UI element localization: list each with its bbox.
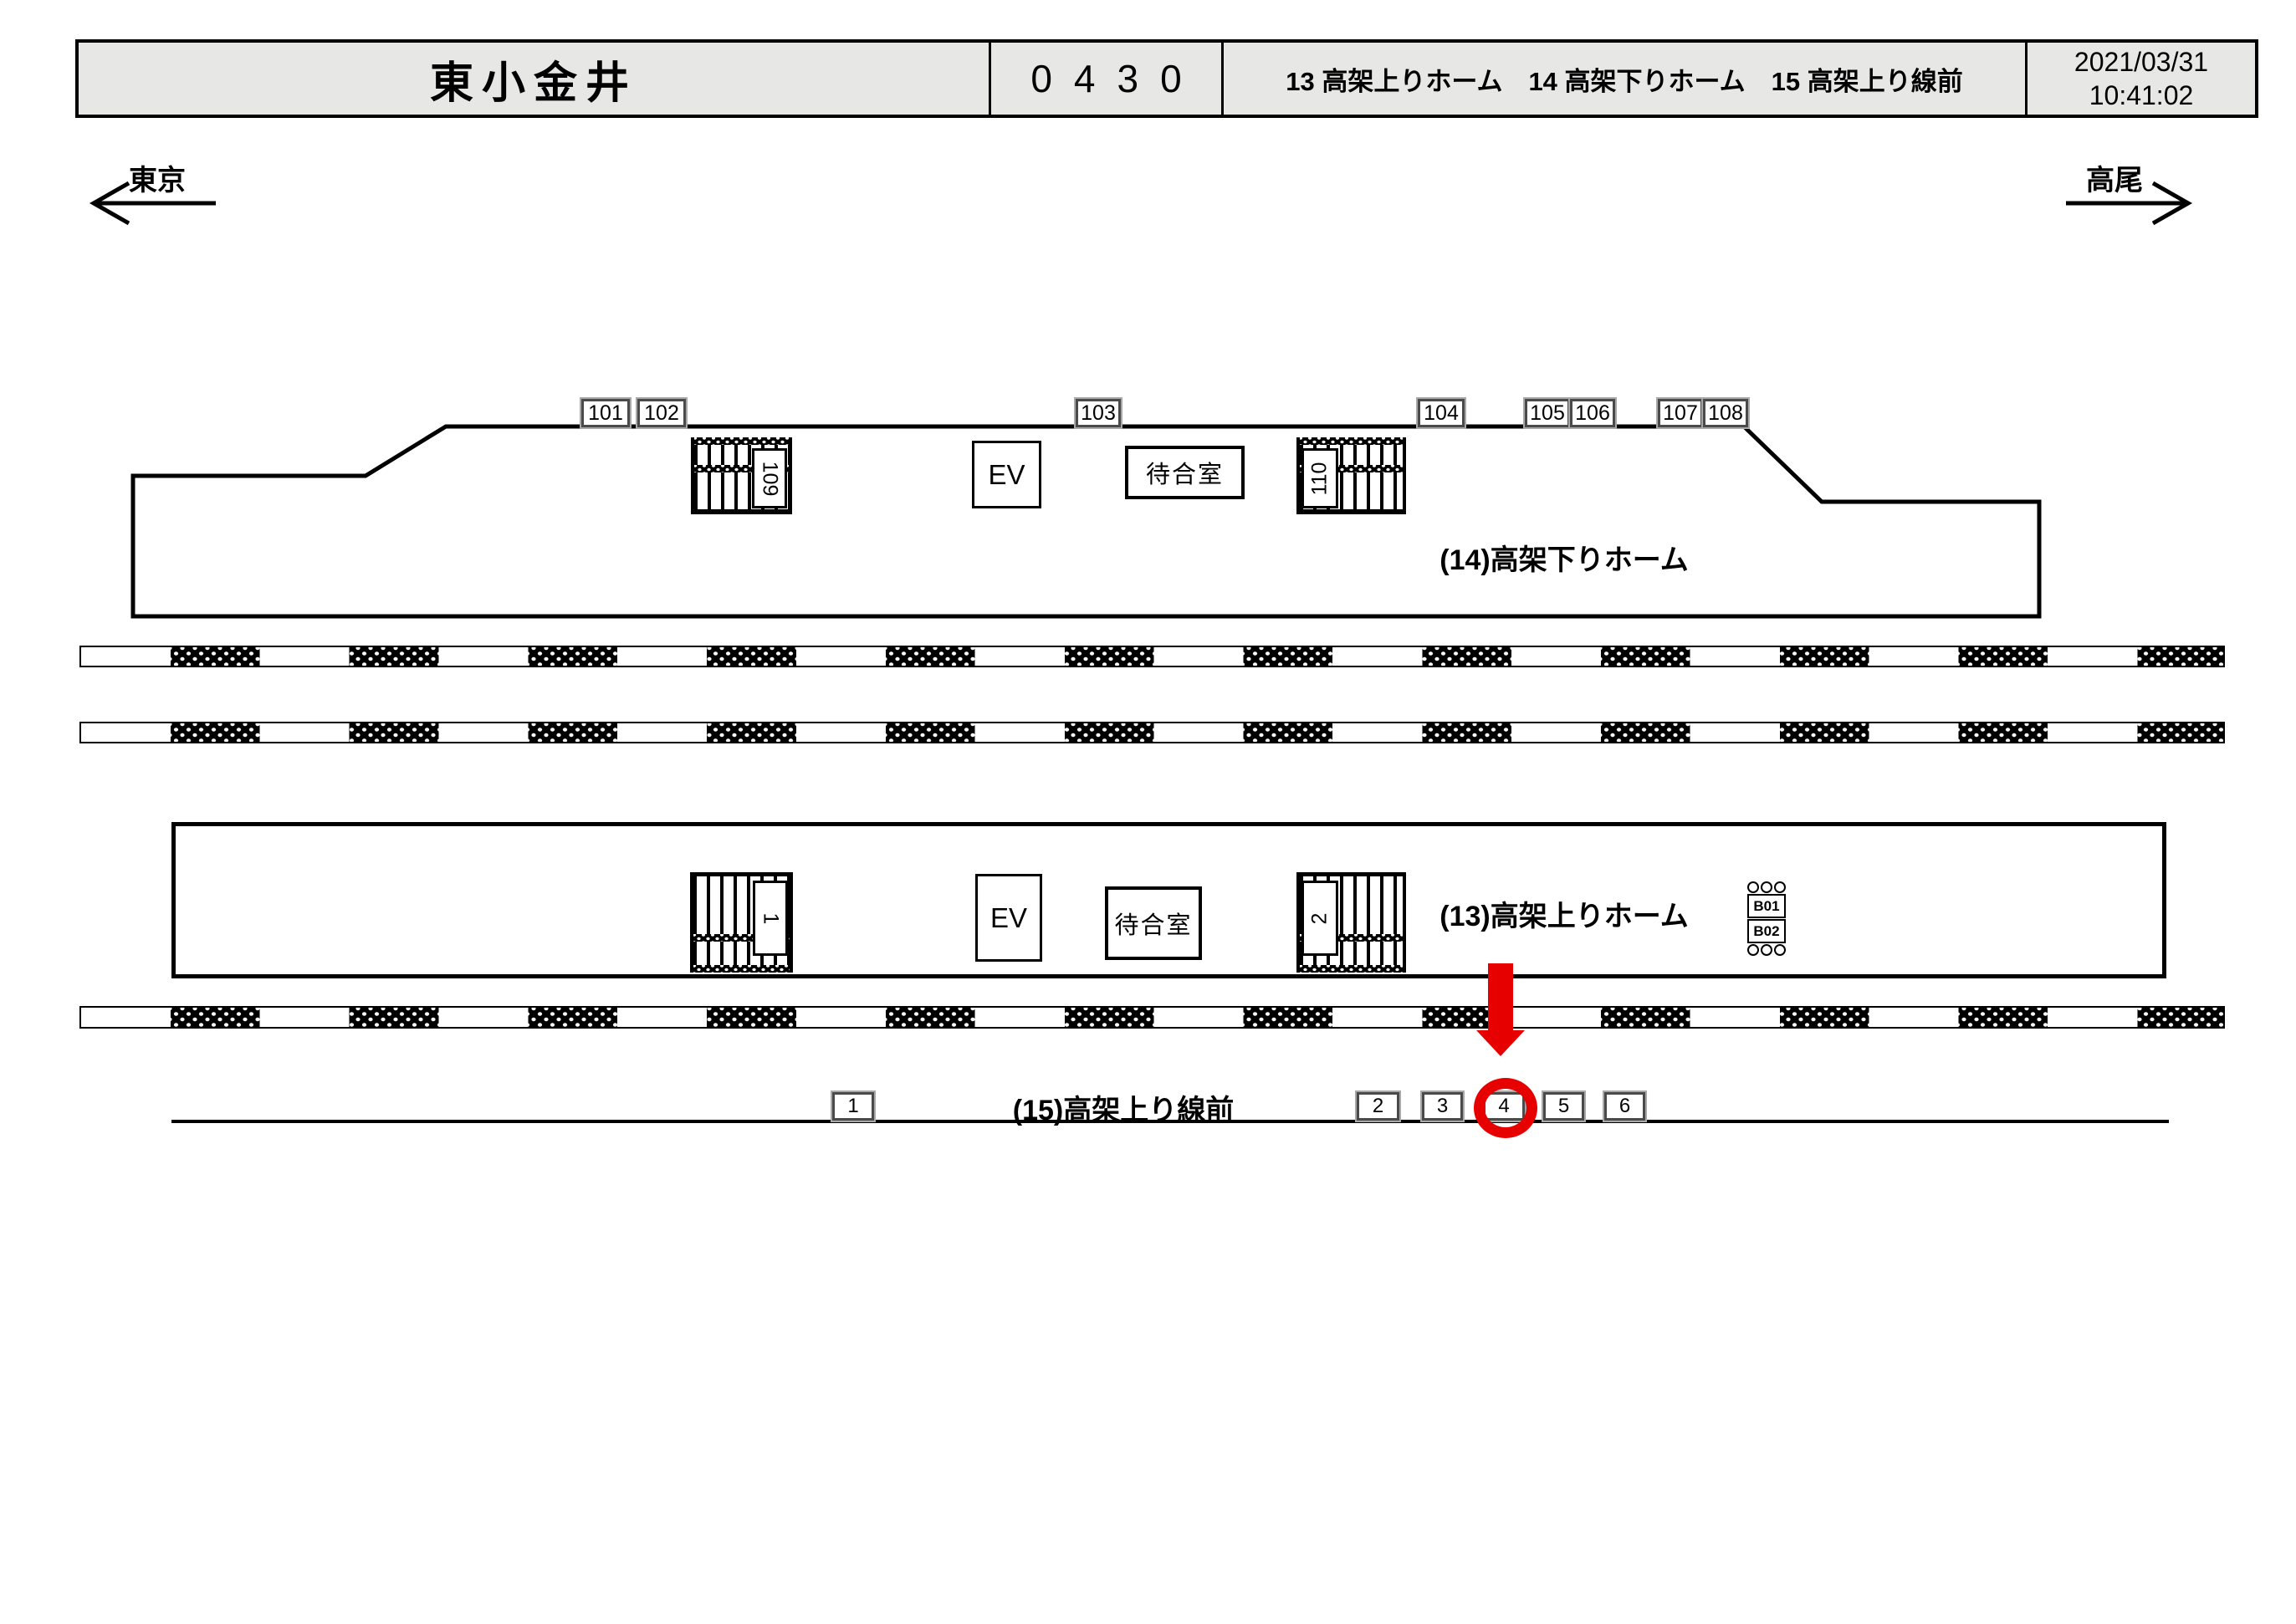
- direction-left-label: 東京: [107, 157, 207, 198]
- stairs-109-icon: 109: [691, 437, 792, 514]
- stairs-2-label: 2: [1301, 881, 1338, 956]
- header-bar: 東小金井 0430 13 高架上りホーム 14 高架下りホーム 15 高架上り線…: [75, 39, 2258, 118]
- elevator-box-platform13: EV: [975, 874, 1042, 962]
- stairs-landing-strip: [694, 437, 789, 445]
- camera-box-2[interactable]: 2: [1357, 1092, 1399, 1121]
- datetime-panel: 2021/03/31 10:41:02: [2025, 43, 2255, 115]
- platform13-label: (13)高架上りホーム: [1397, 893, 1731, 934]
- elevator-box-platform14: EV: [972, 441, 1041, 508]
- direction-right-label: 高尾: [2064, 157, 2165, 198]
- bench-circle-icon: [1774, 881, 1786, 893]
- stairs-1-label: 1: [753, 881, 788, 956]
- date-text: 2021/03/31: [2074, 45, 2208, 79]
- waiting-room-box-platform13: 待合室: [1105, 886, 1202, 960]
- track-1: [79, 646, 2225, 667]
- stairs-1-icon: 1: [690, 872, 793, 973]
- station-code: 0430: [989, 43, 1221, 115]
- diagram-shapes-layer: [0, 0, 2296, 1624]
- waiting-room-box-platform14: 待合室: [1125, 446, 1245, 499]
- selection-arrowhead-icon: [1476, 1030, 1525, 1056]
- stairs-landing-strip: [693, 965, 790, 973]
- bench-circle-icon: [1761, 944, 1772, 956]
- bench-circle-icon: [1774, 944, 1786, 956]
- bench-camera-group: B01 B02: [1747, 881, 1786, 956]
- stairs-edge-bar: [694, 509, 789, 514]
- stairs-109-label: 109: [752, 448, 787, 508]
- camera-box-b01[interactable]: B01: [1747, 894, 1786, 918]
- platform-list: 13 高架上りホーム 14 高架下りホーム 15 高架上り線前: [1221, 43, 2025, 115]
- camera-box-107[interactable]: 107: [1658, 399, 1703, 427]
- selection-circle-icon: [1474, 1078, 1537, 1138]
- platform14-label: (14)高架下りホーム: [1397, 537, 1731, 578]
- camera-box-6[interactable]: 6: [1604, 1092, 1645, 1121]
- selection-arrow-icon: [1488, 963, 1513, 1031]
- camera-box-106[interactable]: 106: [1570, 399, 1615, 427]
- time-text: 10:41:02: [2089, 79, 2194, 112]
- track-2: [79, 722, 2225, 743]
- stairs-110-icon: 110: [1296, 437, 1406, 514]
- stairs-2-icon: 2: [1296, 872, 1406, 973]
- line15-label: (15)高架上り線前: [998, 1087, 1249, 1128]
- stairs-edge-bar: [693, 872, 790, 876]
- camera-box-1[interactable]: 1: [832, 1092, 874, 1121]
- camera-box-108[interactable]: 108: [1703, 399, 1748, 427]
- camera-box-3[interactable]: 3: [1422, 1092, 1463, 1121]
- camera-box-102[interactable]: 102: [637, 399, 686, 427]
- bench-circles-bottom: [1747, 944, 1786, 956]
- camera-box-b02[interactable]: B02: [1747, 919, 1786, 943]
- stairs-landing-strip: [1300, 965, 1403, 973]
- bench-circles-top: [1747, 881, 1786, 893]
- station-monitor-screen: 東小金井 0430 13 高架上りホーム 14 高架下りホーム 15 高架上り線…: [0, 0, 2296, 1624]
- stairs-landing-strip: [1300, 437, 1403, 445]
- stairs-edge-bar: [1300, 872, 1403, 876]
- camera-box-105[interactable]: 105: [1525, 399, 1570, 427]
- camera-box-101[interactable]: 101: [581, 399, 630, 427]
- bench-circle-icon: [1761, 881, 1772, 893]
- track-3: [79, 1006, 2225, 1029]
- station-title: 東小金井: [79, 43, 989, 115]
- stairs-edge-bar: [1300, 509, 1403, 514]
- bench-circle-icon: [1747, 881, 1759, 893]
- camera-box-5[interactable]: 5: [1543, 1092, 1584, 1121]
- stairs-110-label: 110: [1301, 448, 1338, 508]
- bench-circle-icon: [1747, 944, 1759, 956]
- platform14-shape: [133, 426, 2039, 616]
- camera-box-103[interactable]: 103: [1076, 399, 1121, 427]
- camera-box-104[interactable]: 104: [1418, 399, 1465, 427]
